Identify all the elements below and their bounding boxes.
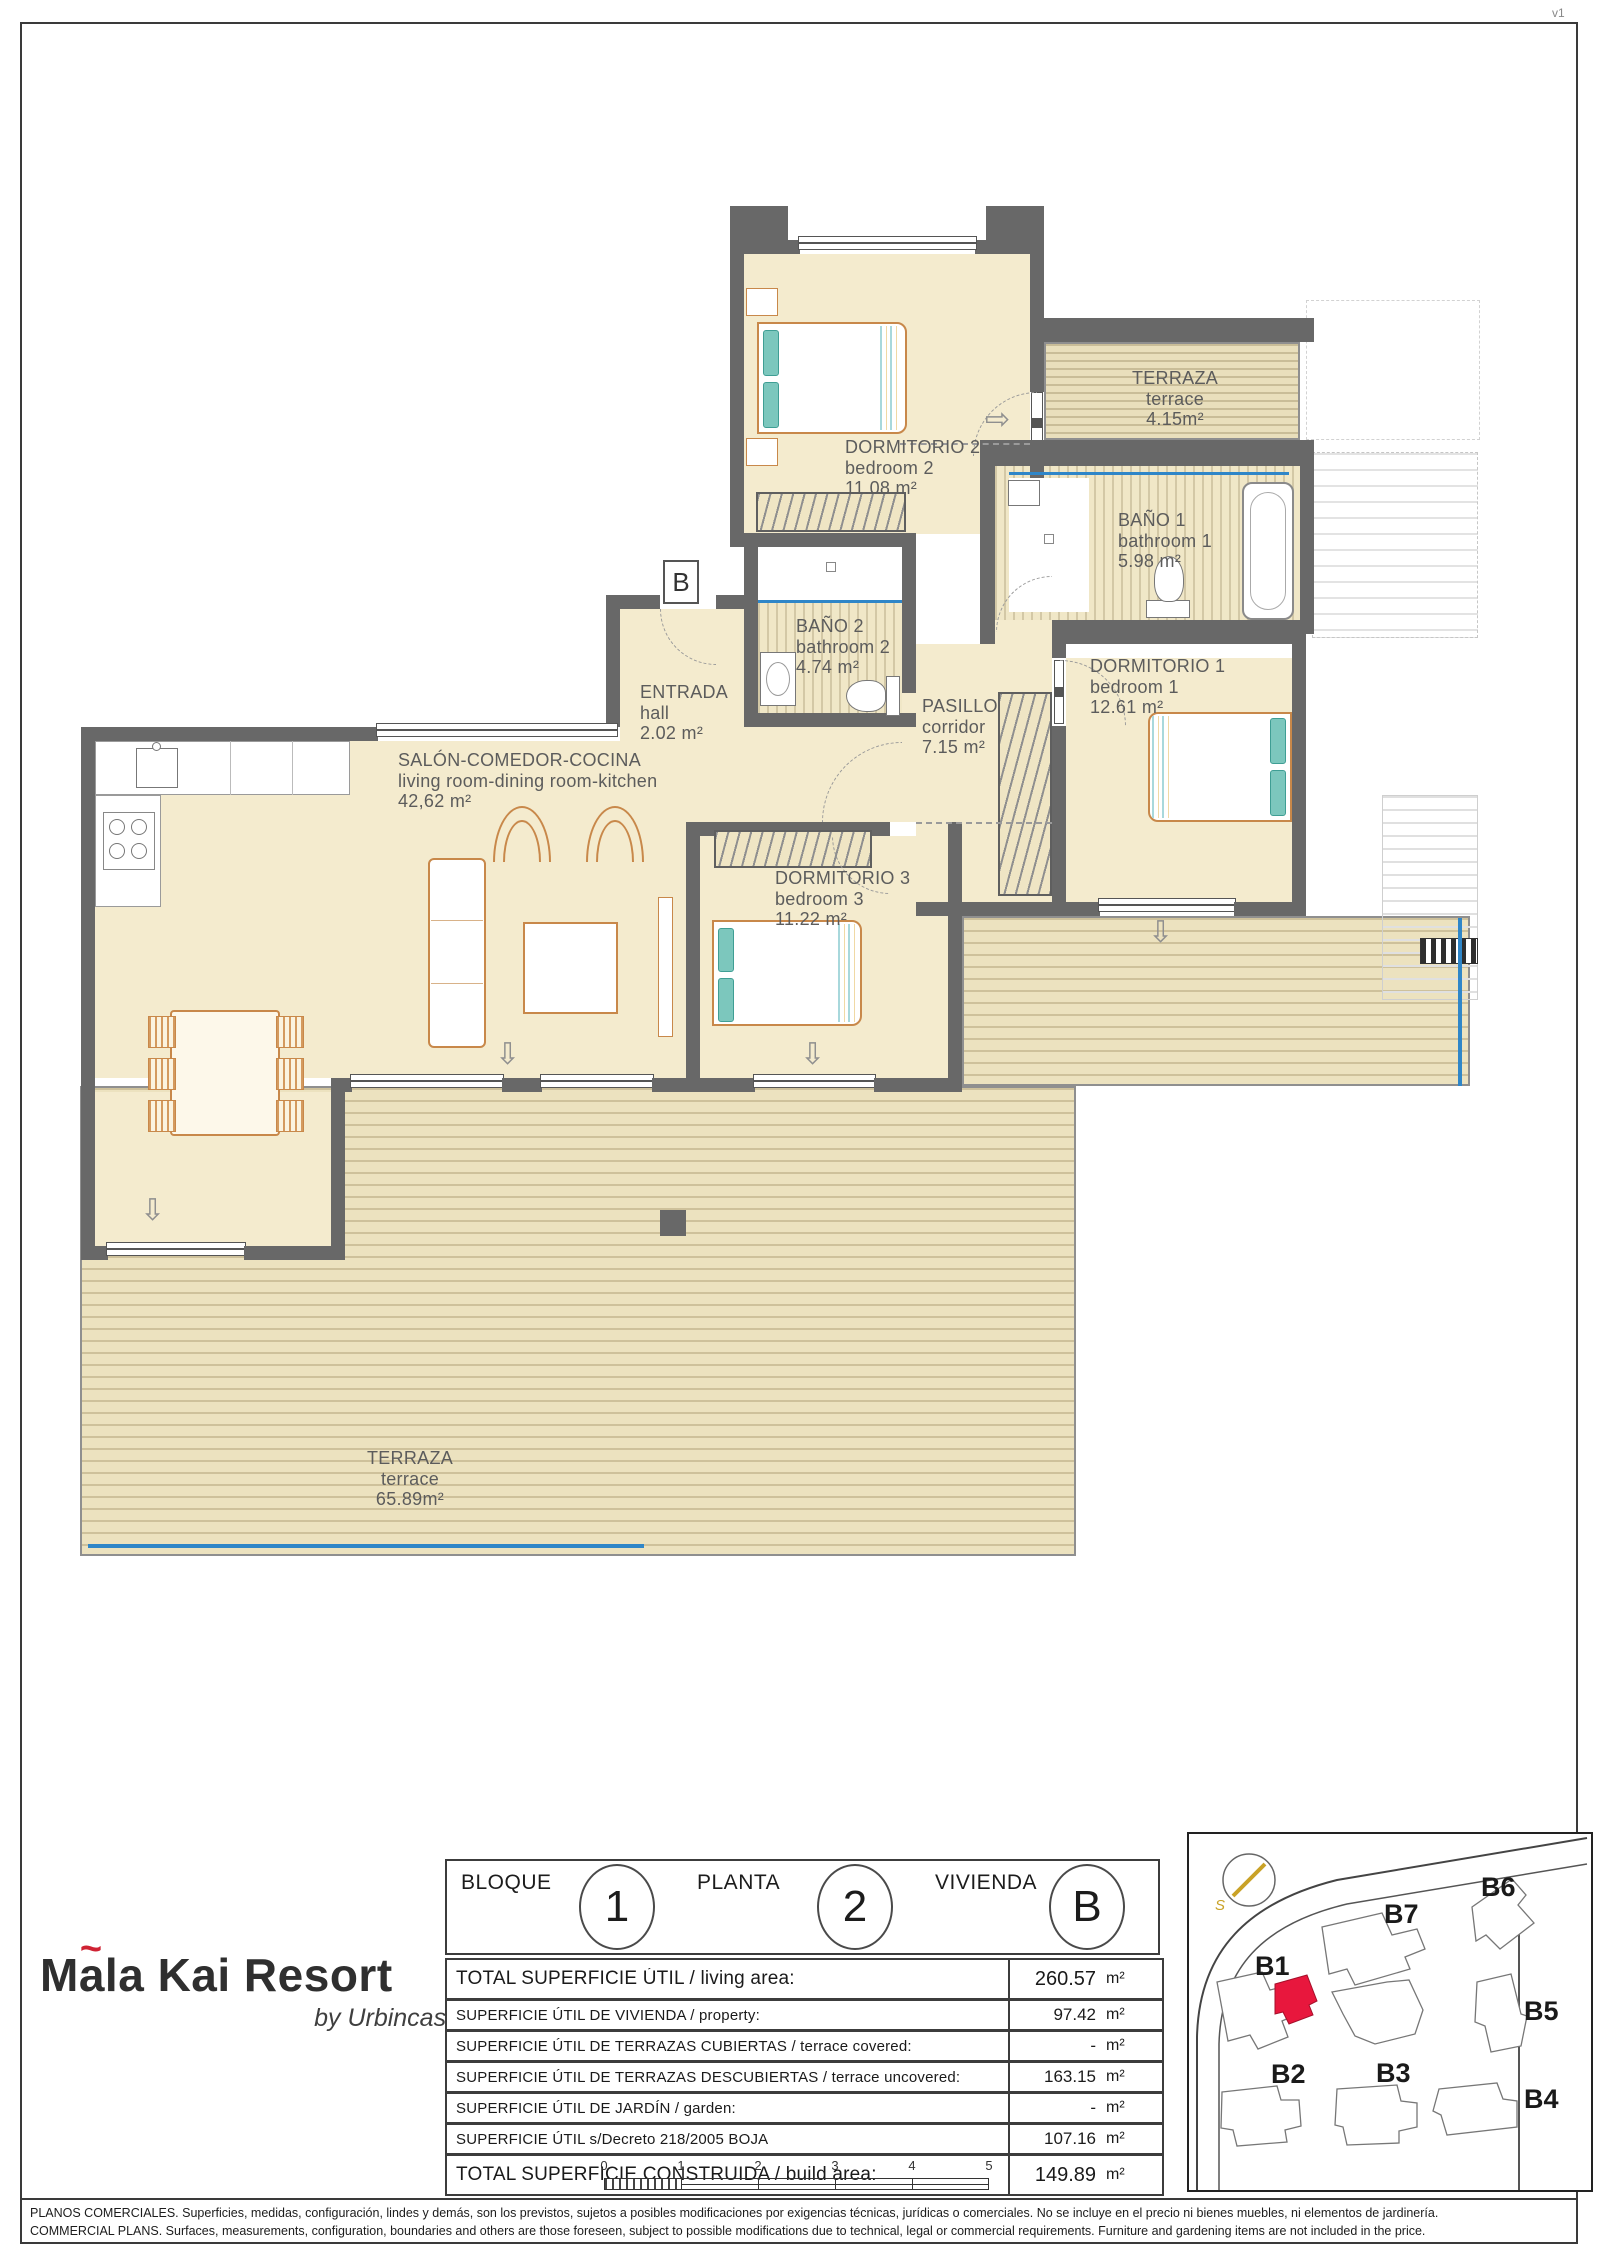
deck-pillar	[660, 1210, 686, 1236]
room-label-terrace-top: TERRAZAterrace4.15m²	[1085, 368, 1265, 430]
drain-icon	[826, 562, 836, 572]
toilet-tank	[886, 676, 900, 716]
sofa-cushion-line	[431, 983, 483, 984]
threshold-line	[916, 822, 1052, 824]
wall	[744, 533, 758, 727]
vivienda-label: VIVIENDA	[935, 1871, 1037, 1895]
wall	[331, 1078, 352, 1092]
wall	[902, 533, 916, 693]
window	[753, 1074, 876, 1088]
room-label-living: SALÓN-COMEDOR-COCINAliving room-dining r…	[398, 750, 657, 812]
table-row: SUPERFICIE ÚTIL DE JARDÍN / garden: -m²	[445, 2092, 1164, 2124]
site-label-b4: B4	[1524, 2084, 1559, 2114]
row-label: SUPERFICIE ÚTIL DE TERRAZAS DESCUBIERTAS…	[447, 2069, 1008, 2086]
site-label-b5: B5	[1524, 1996, 1559, 2026]
window	[798, 236, 977, 250]
disclaimer-line-es: PLANOS COMERCIALES. Superficies, medidas…	[30, 2206, 1570, 2220]
dining-chair	[276, 1016, 304, 1048]
scale-bar-subdivision	[605, 2179, 681, 2189]
burner-icon	[109, 843, 125, 859]
window	[106, 1242, 246, 1256]
wall	[606, 595, 620, 727]
glass-balustrade	[1458, 918, 1462, 1086]
room-label-bedroom1: DORMITORIO 1bedroom 112.61 m²	[1090, 656, 1225, 718]
coffee-table	[523, 922, 618, 1014]
row-unit: m²	[1096, 2006, 1162, 2024]
row-value: 149.89	[1010, 2164, 1096, 2187]
row-label: SUPERFICIE ÚTIL DE TERRAZAS CUBIERTAS / …	[447, 2038, 1008, 2055]
scale-tick: 3	[825, 2158, 845, 2173]
room-label-bedroom2: DORMITORIO 2bedroom 211.08 m²	[845, 437, 980, 499]
room-label-corridor: PASILLOcorridor7.15 m²	[922, 696, 998, 758]
site-label-b2: B2	[1271, 2059, 1306, 2089]
bloque-label: BLOQUE	[461, 1871, 552, 1895]
unit-badge-letter: B	[672, 567, 689, 598]
room-label-bath1: BAÑO 1bathroom 15.98 m²	[1118, 510, 1212, 572]
door-arrow-icon: ⇨	[985, 405, 1010, 435]
wall	[744, 533, 916, 547]
version-label: v1	[1552, 6, 1565, 20]
shower-tray	[758, 547, 902, 603]
vivienda-value-circle: B	[1049, 1864, 1125, 1950]
table-row: SUPERFICIE ÚTIL DE TERRAZAS DESCUBIERTAS…	[445, 2061, 1164, 2093]
wall	[1052, 902, 1100, 916]
wall	[986, 206, 1044, 240]
wall	[1234, 902, 1306, 916]
elevator-bar	[1420, 938, 1478, 964]
hob	[103, 812, 155, 870]
row-label: TOTAL SUPERFICIE ÚTIL / living area:	[447, 1968, 1008, 1990]
dining-chair	[148, 1058, 176, 1090]
row-label: SUPERFICIE ÚTIL DE JARDÍN / garden:	[447, 2100, 1008, 2117]
row-unit: m²	[1096, 2099, 1162, 2117]
sofa-cushion-line	[431, 920, 483, 921]
burner-icon	[131, 819, 147, 835]
washbasin-bowl	[766, 662, 790, 696]
plan-sheet: v1	[0, 0, 1600, 2264]
pillow	[1270, 718, 1286, 764]
door-arrow-icon: ⇩	[495, 1040, 520, 1070]
door-arrow-icon: ⇩	[1148, 918, 1173, 948]
row-unit: m²	[1096, 2037, 1162, 2055]
wall	[331, 1092, 345, 1260]
stairs-lower	[1382, 795, 1478, 1000]
row-value: 107.16	[1010, 2129, 1096, 2149]
wall	[686, 1078, 755, 1092]
row-unit: m²	[1096, 2130, 1162, 2148]
row-unit: m²	[1096, 1970, 1162, 1988]
door-arrow-icon: ⇩	[800, 1040, 825, 1070]
planta-value-circle: 2	[817, 1864, 893, 1950]
toilet-tank	[1146, 600, 1190, 618]
scale-tick: 5	[979, 2158, 999, 2173]
stairs-upper	[1312, 452, 1478, 638]
toilet-bowl	[846, 680, 886, 712]
bloque-value-circle: 1	[579, 1864, 655, 1950]
tv-console	[658, 897, 673, 1037]
wall	[81, 727, 95, 1260]
wall	[81, 727, 378, 741]
vivienda-value: B	[1072, 1882, 1101, 1932]
scale-tick: 4	[902, 2158, 922, 2173]
glass-balustrade	[88, 1544, 644, 1548]
row-label: SUPERFICIE ÚTIL s/Decreto 218/2005 BOJA	[447, 2131, 1008, 2148]
wall	[1292, 644, 1306, 916]
wall	[948, 822, 962, 1092]
shower-screen	[1009, 472, 1289, 475]
sliding-door	[540, 1074, 654, 1088]
room-label-terrace-main: TERRAZAterrace65.89m²	[330, 1448, 490, 1510]
row-value: 163.15	[1010, 2067, 1096, 2087]
faucet-icon	[152, 742, 161, 751]
bed-runner	[880, 326, 900, 430]
row-value: -	[1010, 2036, 1096, 2056]
table-row: SUPERFICIE ÚTIL DE VIVIENDA / property: …	[445, 1999, 1164, 2031]
nightstand	[746, 438, 778, 466]
sliding-door	[350, 1074, 504, 1088]
sofa	[428, 858, 486, 1048]
bathtub-basin	[1250, 492, 1286, 610]
wall	[916, 902, 1052, 916]
stairwell	[1306, 300, 1480, 440]
dining-chair	[148, 1100, 176, 1132]
pillow	[1270, 770, 1286, 816]
scale-tick: 2	[748, 2158, 768, 2173]
wall	[1052, 644, 1066, 658]
burner-icon	[109, 819, 125, 835]
dining-chair	[276, 1058, 304, 1090]
bed-runner	[1152, 716, 1170, 818]
table-row: TOTAL SUPERFICIE ÚTIL / living area: 260…	[445, 1958, 1164, 2000]
counter-divider	[292, 741, 293, 795]
pillow	[718, 928, 734, 972]
scale-tick: 1	[671, 2158, 691, 2173]
kitchen-counter	[95, 741, 350, 795]
planta-label: PLANTA	[697, 1871, 780, 1895]
row-unit: m²	[1096, 2068, 1162, 2086]
pillow	[763, 330, 779, 376]
wall	[606, 595, 660, 609]
wall	[1052, 726, 1066, 916]
wall	[874, 1078, 962, 1092]
wall	[1052, 620, 1306, 644]
wall	[980, 620, 995, 644]
site-label-b6: B6	[1481, 1872, 1516, 1902]
washbasin	[1008, 480, 1040, 506]
bloque-value: 1	[605, 1882, 629, 1932]
scale-tick: 0	[594, 2158, 614, 2173]
nightstand	[746, 288, 778, 316]
dining-table	[170, 1010, 280, 1136]
brand-logo: Ma~la Kai Resort	[40, 1948, 393, 2002]
room-label-bath2: BAÑO 2bathroom 24.74 m²	[796, 616, 890, 678]
wall	[1030, 342, 1044, 392]
brand-byline: by Urbincasa	[40, 2004, 460, 2033]
wall	[686, 822, 700, 1092]
pillow	[763, 382, 779, 428]
dining-chair	[148, 1016, 176, 1048]
wall	[980, 466, 995, 620]
dining-chair	[276, 1100, 304, 1132]
window	[376, 723, 618, 737]
window	[1098, 898, 1236, 912]
wall	[730, 240, 744, 547]
row-value: -	[1010, 2098, 1096, 2118]
wall	[1300, 440, 1314, 634]
row-unit: m²	[1096, 2166, 1162, 2184]
wall	[244, 1246, 345, 1260]
room-label-bedroom3: DORMITORIO 3bedroom 311.22 m²	[775, 868, 910, 930]
logo-tilde-accent: ~	[80, 1928, 103, 1971]
counter-divider	[230, 741, 231, 795]
site-label-b3: B3	[1376, 2058, 1411, 2088]
compass-s: S	[1215, 1897, 1225, 1914]
door-arrow-icon: ⇩	[140, 1196, 165, 1226]
logo-text: la Kai Resort	[105, 1949, 393, 2001]
row-value: 97.42	[1010, 2005, 1096, 2025]
disclaimer-line-en: COMMERCIAL PLANS. Surfaces, measurements…	[30, 2224, 1570, 2238]
wall	[716, 595, 744, 609]
site-label-b1: B1	[1255, 1951, 1290, 1981]
pillow	[718, 978, 734, 1022]
site-plan: S B1 B2 B3 B4 B5 B6 B7	[1187, 1832, 1593, 2192]
logo-text: M	[40, 1949, 79, 2001]
wall	[502, 1078, 542, 1092]
row-value: 260.57	[1010, 1968, 1096, 1991]
planta-value: 2	[843, 1882, 867, 1932]
burner-icon	[131, 843, 147, 859]
kitchen-sink	[136, 748, 178, 788]
table-row: SUPERFICIE ÚTIL DE TERRAZAS CUBIERTAS / …	[445, 2030, 1164, 2062]
shower-screen	[758, 600, 902, 603]
row-label: SUPERFICIE ÚTIL DE VIVIENDA / property:	[447, 2007, 1008, 2024]
bed-runner	[838, 924, 856, 1022]
drain-icon	[1044, 534, 1054, 544]
site-label-b7: B7	[1384, 1899, 1419, 1929]
wall	[1030, 318, 1314, 342]
scale-bar-midline	[681, 2184, 989, 2185]
table-row: SUPERFICIE ÚTIL s/Decreto 218/2005 BOJA …	[445, 2123, 1164, 2155]
room-label-entrance: ENTRADAhall2.02 m²	[640, 682, 728, 744]
wardrobe	[998, 692, 1052, 896]
unit-badge: B	[663, 560, 699, 604]
wall	[730, 206, 788, 240]
legend-box: BLOQUE 1 PLANTA 2 VIVIENDA B	[445, 1859, 1160, 1955]
wall	[81, 1246, 108, 1260]
